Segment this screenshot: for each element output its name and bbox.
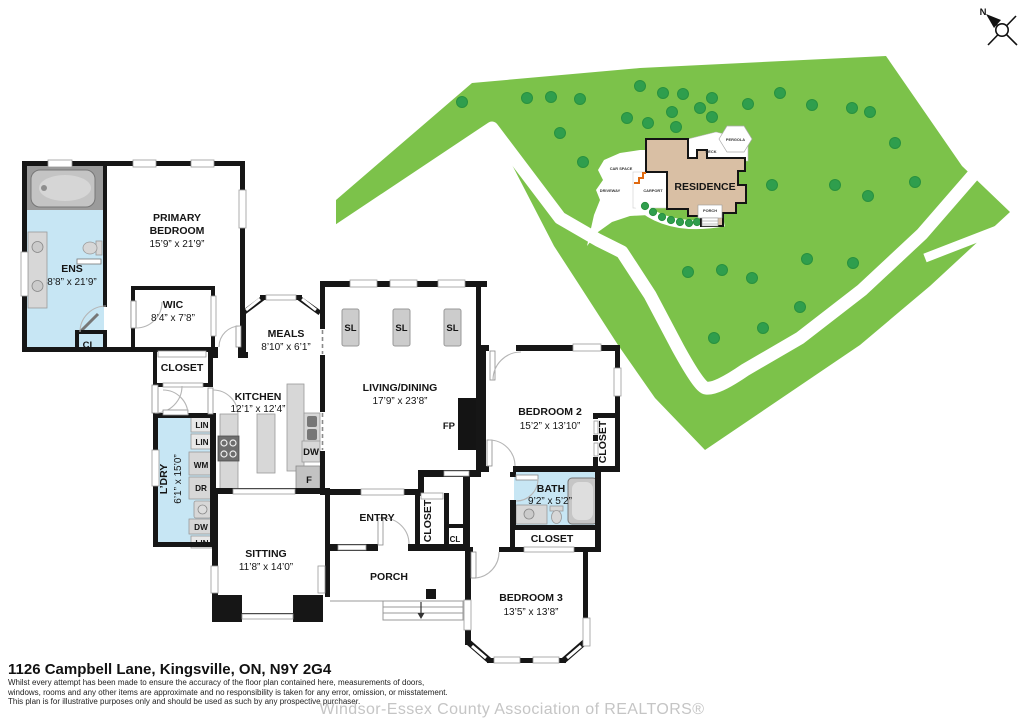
residence-label: RESIDENCE: [674, 181, 735, 193]
tree-icon: [743, 99, 754, 110]
tree-icon: [910, 177, 921, 188]
lin-label: LIN: [195, 539, 208, 548]
sitting-name: SITTING: [245, 548, 286, 560]
wic-dims: 8’4” x 7’8”: [151, 313, 195, 324]
primary-name1: PRIMARY: [153, 212, 201, 224]
tree-icon: [578, 157, 589, 168]
sitting-dims: 11’8” x 14’0”: [239, 562, 293, 573]
wic-name: WIC: [163, 299, 184, 311]
closet-label: CLOSET: [422, 499, 434, 542]
bedroom3-name: BEDROOM 3: [499, 592, 563, 604]
tub-drain: [41, 185, 47, 191]
driveway-label: DRIVEWAY: [600, 188, 621, 193]
porch-steps: [330, 601, 463, 620]
meals-name: MEALS: [268, 328, 305, 340]
closet-label: CLOSET: [161, 362, 204, 374]
porch-label: PORCH: [370, 571, 408, 583]
tub-inner: [572, 482, 593, 520]
car-space-label: CAR SPACE: [610, 166, 633, 171]
sl-label: SL: [395, 323, 407, 334]
living-features: [342, 309, 481, 450]
tree-icon: [865, 107, 876, 118]
sink-icon: [32, 242, 43, 253]
fp-label: FP: [443, 421, 456, 432]
burner: [221, 440, 227, 446]
toilet-icon: [83, 242, 97, 254]
disclaimer-line: windows, rooms and any other items are a…: [8, 688, 1018, 698]
tree-icon: [643, 118, 654, 129]
pergola-label: PERGOLA: [726, 137, 745, 142]
sink-icon: [524, 509, 534, 519]
ldry-dims: 6’1” x 15’0”: [173, 454, 184, 503]
entry-label: ENTRY: [359, 512, 394, 524]
island: [257, 414, 275, 473]
bush-icon: [649, 208, 656, 215]
sink-basin: [307, 416, 317, 427]
tree-icon: [678, 89, 689, 100]
bush-icon: [658, 213, 665, 220]
counter: [287, 384, 304, 471]
ldry-name: L’DRY: [158, 464, 170, 495]
closet-label: CLOSET: [531, 533, 574, 545]
tree-icon: [802, 254, 813, 265]
tree-icon: [667, 107, 678, 118]
bush-icon: [641, 202, 648, 209]
living-name: LIVING/DINING: [363, 382, 438, 394]
tree-icon: [707, 112, 718, 123]
dw-label: DW: [303, 447, 319, 458]
tree-icon: [795, 302, 806, 313]
burner: [230, 440, 236, 446]
primary-name2: BEDROOM: [150, 225, 205, 237]
bedroom2-dims: 15’2” x 13’10”: [520, 421, 581, 432]
bedroom3-dims: 13’5” x 13’8”: [503, 607, 558, 618]
site-porch-steps: [702, 218, 718, 226]
toilet-icon: [552, 511, 562, 524]
tree-icon: [522, 93, 533, 104]
cl-label: CL: [450, 535, 461, 544]
tree-icon: [717, 265, 728, 276]
sl-label: SL: [344, 323, 356, 334]
sink-icon: [32, 281, 43, 292]
lin-label: LIN: [195, 438, 208, 447]
sl-label: SL: [446, 323, 458, 334]
tree-icon: [807, 100, 818, 111]
tree-icon: [695, 103, 706, 114]
cl-label: CL: [83, 340, 96, 351]
bath-dims: 9’2” x 5’2”: [528, 496, 572, 507]
dw-label: DW: [194, 523, 208, 532]
kitchen-name: KITCHEN: [235, 391, 282, 403]
fridge-label: F: [306, 475, 312, 486]
tree-icon: [635, 81, 646, 92]
ens-name: ENS: [61, 263, 83, 275]
bush-icon: [676, 218, 683, 225]
primary-dims: 15’9” x 21’9”: [149, 239, 204, 250]
tree-icon: [747, 273, 758, 284]
appliance-door: [198, 505, 207, 514]
tree-icon: [709, 333, 720, 344]
disclaimer-line: Whilst every attempt has been made to en…: [8, 678, 1018, 688]
bath-name: BATH: [537, 483, 565, 495]
tree-icon: [830, 180, 841, 191]
tree-icon: [622, 113, 633, 124]
burner: [230, 451, 236, 457]
stove-icon: [218, 436, 239, 461]
tree-icon: [863, 191, 874, 202]
bedroom2-name: BEDROOM 2: [518, 406, 582, 418]
closet-label: CLOSET: [597, 420, 609, 463]
tree-icon: [671, 122, 682, 133]
wm-label: WM: [194, 461, 209, 470]
compass-rose: N: [980, 7, 1017, 45]
floorplan-canvas: RESIDENCE DECK PERGOLA CAR SPACE DRIVEWA…: [0, 0, 1024, 723]
tree-icon: [555, 128, 566, 139]
tree-icon: [890, 138, 901, 149]
tree-icon: [847, 103, 858, 114]
tree-icon: [848, 258, 859, 269]
floorplan-page: RESIDENCE DECK PERGOLA CAR SPACE DRIVEWA…: [0, 0, 1024, 723]
tree-icon: [758, 323, 769, 334]
tree-icon: [767, 180, 778, 191]
bush-icon: [667, 216, 674, 223]
compass-north-label: N: [980, 7, 987, 18]
tree-icon: [658, 88, 669, 99]
footer: 1126 Campbell Lane, Kingsville, ON, N9Y …: [8, 661, 1018, 707]
compass-circle: [996, 24, 1008, 36]
tree-icon: [707, 93, 718, 104]
site-porch-label: PORCH: [703, 208, 717, 213]
deck-label: DECK: [705, 149, 716, 154]
tree-icon: [683, 267, 694, 278]
living-dims: 17’9” x 23’8”: [372, 396, 427, 407]
dr-label: DR: [195, 484, 207, 493]
tree-icon: [775, 88, 786, 99]
tree-icon: [546, 92, 557, 103]
tree-icon: [457, 97, 468, 108]
tree-icon: [575, 94, 586, 105]
burner: [221, 451, 227, 457]
meals-dims: 8’10” x 6’1”: [261, 342, 310, 353]
bush-icon: [693, 218, 700, 225]
watermark: Windsor-Essex County Association of REAL…: [0, 701, 1024, 719]
lin-label: LIN: [195, 421, 208, 430]
bush-icon: [685, 219, 692, 226]
ens-dims: 8’8” x 21’9”: [47, 277, 96, 288]
address-title: 1126 Campbell Lane, Kingsville, ON, N9Y …: [8, 661, 1018, 678]
kitchen-dims: 12’1” x 12’4”: [230, 404, 285, 415]
sink-basin: [307, 429, 317, 440]
carport-label: CARPORT: [643, 188, 663, 193]
floor-plan: PRIMARY BEDROOM 15’9” x 21’9” ENS 8’8” x…: [21, 160, 621, 663]
